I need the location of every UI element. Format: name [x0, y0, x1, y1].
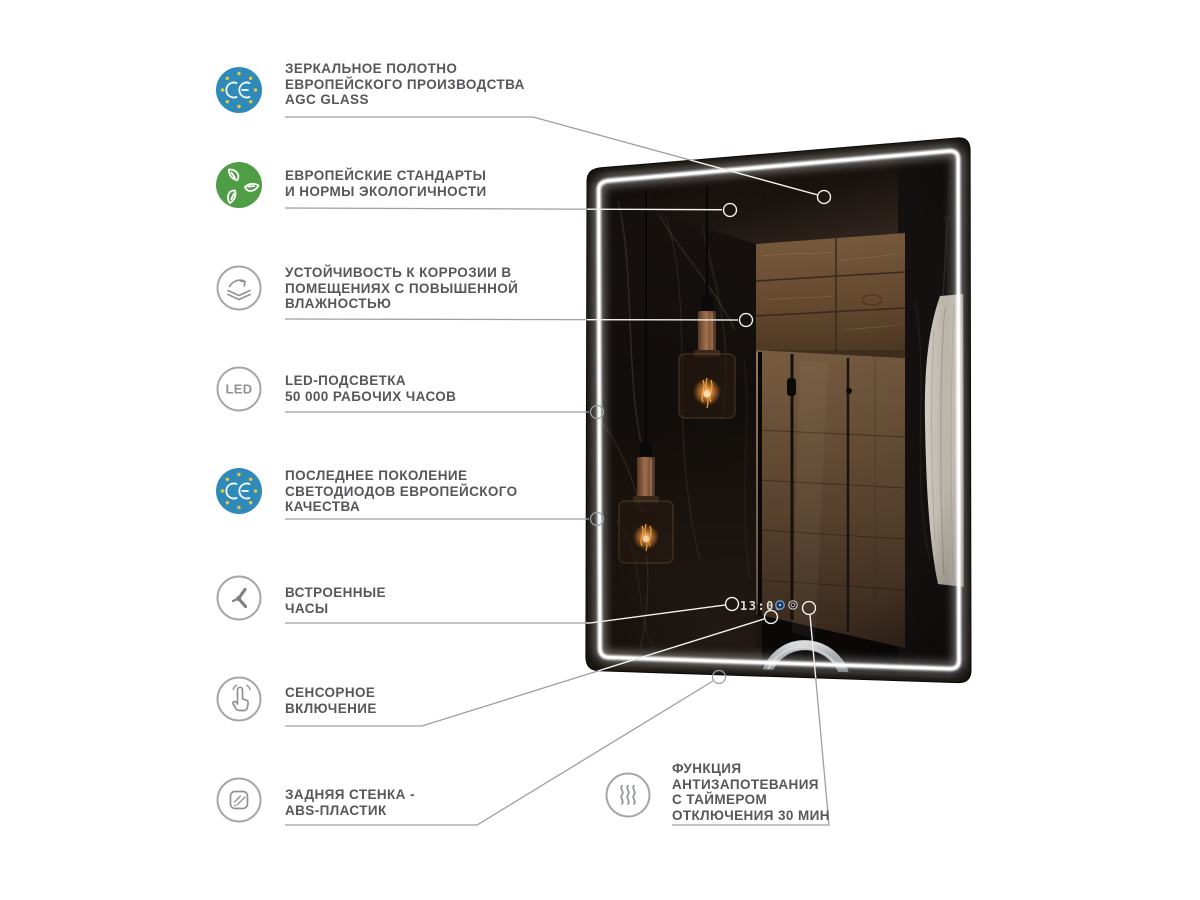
svg-text:LED: LED: [226, 382, 253, 397]
feature-line: ВСТРОЕННЫЕ: [285, 585, 386, 601]
feature-line: ЕВРОПЕЙСКИЕ СТАНДАРТЫ: [285, 168, 487, 184]
feature-line: ЕВРОПЕЙСКОГО ПРОИЗВОДСТВА: [285, 77, 525, 93]
feature-line: ЗАДНЯЯ СТЕНКА -: [285, 787, 415, 803]
feature-line: С ТАЙМЕРОМ: [672, 792, 830, 808]
feature-line: АНТИЗАПОТЕВАНИЯ: [672, 777, 830, 793]
feature-line: СВЕТОДИОДОВ ЕВРОПЕЙСКОГО: [285, 484, 518, 500]
mirror-photo: 13:06: [585, 130, 975, 690]
feature-line: ФУНКЦИЯ: [672, 761, 830, 777]
mirror-and-callouts: 13:06: [0, 0, 1200, 900]
ce-mark-icon: [215, 66, 263, 114]
corrosion-layers-icon: [215, 264, 263, 312]
mirror-reflection-scene: 13:06: [585, 130, 975, 690]
feature-line: УСТОЙЧИВОСТЬ К КОРРОЗИИ В: [285, 265, 518, 281]
feature-line: ПОСЛЕДНЕЕ ПОКОЛЕНИЕ: [285, 468, 518, 484]
abs-panel-icon: [215, 776, 263, 824]
touch-icon: [215, 675, 263, 723]
feature-line: ВЛАЖНОСТЬЮ: [285, 296, 518, 312]
eco-leaves-icon: [215, 161, 263, 209]
feature-line: ВКЛЮЧЕНИЕ: [285, 701, 377, 717]
feature-diodes: ПОСЛЕДНЕЕ ПОКОЛЕНИЕ СВЕТОДИОДОВ ЕВРОПЕЙС…: [285, 468, 518, 515]
feature-agc-glass: ЗЕРКАЛЬНОЕ ПОЛОТНО ЕВРОПЕЙСКОГО ПРОИЗВОД…: [285, 61, 525, 108]
clock-icon: [215, 574, 263, 622]
feature-touch: СЕНСОРНОЕ ВКЛЮЧЕНИЕ: [285, 685, 377, 716]
feature-abs-back: ЗАДНЯЯ СТЕНКА - ABS-ПЛАСТИК: [285, 787, 415, 818]
feature-led-life: LED-ПОДСВЕТКА 50 000 РАБОЧИХ ЧАСОВ: [285, 373, 456, 404]
feature-corrosion: УСТОЙЧИВОСТЬ К КОРРОЗИИ В ПОМЕЩЕНИЯХ С П…: [285, 265, 518, 312]
feature-line: ЗЕРКАЛЬНОЕ ПОЛОТНО: [285, 61, 525, 77]
led-icon: LED: [215, 365, 263, 413]
feature-line: ПОМЕЩЕНИЯХ С ПОВЫШЕННОЙ: [285, 281, 518, 297]
feature-antifog: ФУНКЦИЯ АНТИЗАПОТЕВАНИЯ С ТАЙМЕРОМ ОТКЛЮ…: [672, 761, 830, 823]
callout-led-life: [285, 406, 604, 419]
feature-line: КАЧЕСТВА: [285, 499, 518, 515]
feature-eco: ЕВРОПЕЙСКИЕ СТАНДАРТЫ И НОРМЫ ЭКОЛОГИЧНО…: [285, 168, 487, 199]
feature-line: ЧАСЫ: [285, 601, 386, 617]
infographic-canvas: 13:06: [0, 0, 1200, 900]
feature-line: И НОРМЫ ЭКОЛОГИЧНОСТИ: [285, 184, 487, 200]
feature-line: ABS-ПЛАСТИК: [285, 803, 415, 819]
feature-line: ОТКЛЮЧЕНИЯ 30 МИН: [672, 808, 830, 824]
steam-icon: [604, 771, 652, 819]
ce-mark-icon: [215, 467, 263, 515]
feature-line: AGC GLASS: [285, 92, 525, 108]
feature-line: LED-ПОДСВЕТКА: [285, 373, 456, 389]
feature-line: 50 000 РАБОЧИХ ЧАСОВ: [285, 389, 456, 405]
feature-line: СЕНСОРНОЕ: [285, 685, 377, 701]
feature-clock: ВСТРОЕННЫЕ ЧАСЫ: [285, 585, 386, 616]
